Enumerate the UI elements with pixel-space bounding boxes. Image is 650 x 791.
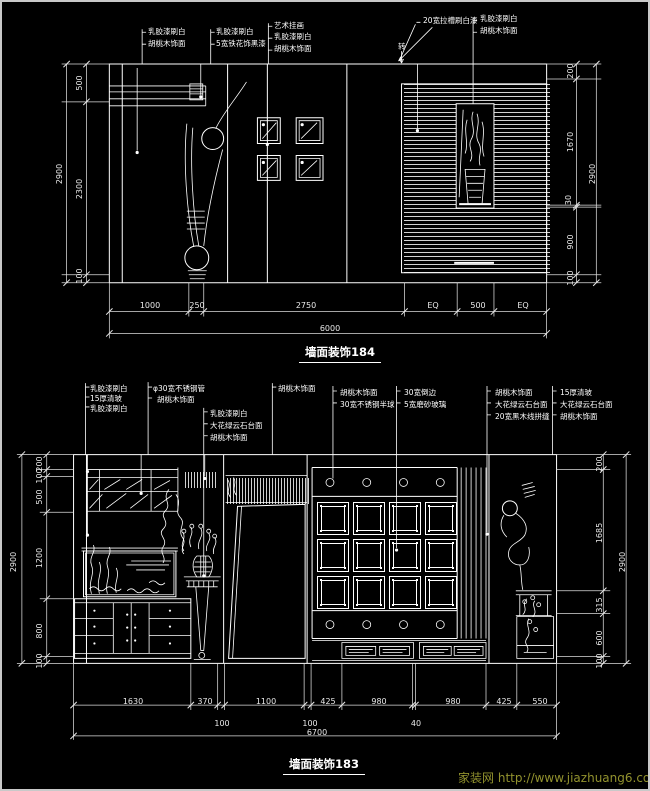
- material-label: 艺术挂画: [274, 22, 304, 30]
- dim-label: 100: [302, 720, 317, 728]
- material-label: 乳胶漆刷白: [148, 28, 186, 36]
- material-label: 胡桃木饰面: [480, 27, 518, 35]
- dim-label: 2300: [76, 179, 84, 199]
- material-label: 乳胶漆刷白: [480, 15, 518, 23]
- dim-label: 2900: [589, 164, 597, 184]
- dim-label: 40: [411, 720, 421, 728]
- material-label: 大花绿云石台面: [560, 401, 613, 409]
- dim-label: 1200: [36, 548, 44, 568]
- dim-label: 1630: [123, 698, 143, 706]
- material-label: 胡桃木饰面: [278, 385, 316, 393]
- watermark-site: 家装网: [458, 771, 494, 785]
- watermark: 家装网 http://www.jiazhuang6.com: [458, 769, 650, 786]
- material-label: 5宽铁花饰黑漆: [216, 40, 266, 48]
- dim-label: 6000: [320, 325, 340, 333]
- dim-label: 200: [567, 63, 575, 78]
- material-label: 胡桃木饰面: [210, 434, 248, 442]
- dim-label: 2900: [10, 552, 18, 572]
- material-label: 胡桃木饰面: [560, 413, 598, 421]
- material-label: 胡桃木饰面: [157, 396, 195, 404]
- dim-label: 1670: [567, 132, 575, 152]
- dim-label: 800: [36, 623, 44, 638]
- material-label: 乳胶漆刷白: [274, 33, 312, 41]
- dim-label: 1100: [256, 698, 276, 706]
- dim-label: 1000: [140, 302, 160, 310]
- dim-label: EQ: [517, 302, 528, 310]
- dim-label: 425: [496, 698, 511, 706]
- dim-label: 100: [596, 653, 604, 668]
- dim-label: 370: [197, 698, 212, 706]
- dim-label: EQ: [427, 302, 438, 310]
- material-label: 胡桃木饰面: [148, 40, 186, 48]
- dim-label: 100: [76, 268, 84, 283]
- dim-label: 100: [36, 468, 44, 483]
- dim-label: 315: [596, 597, 604, 612]
- dim-label: 500: [470, 302, 485, 310]
- material-label: 20宽拉槽刷白漆: [423, 17, 478, 25]
- material-label: 胡桃木饰面: [340, 389, 378, 397]
- material-label: 乳胶漆刷白: [90, 385, 128, 393]
- drawing-title: 墙面装饰184: [299, 344, 381, 363]
- material-label: 大花绿云石台面: [210, 422, 263, 430]
- dim-label: 1685: [596, 523, 604, 543]
- material-label: 胡桃木饰面: [495, 389, 533, 397]
- dim-label: 2900: [56, 164, 64, 184]
- dim-label: 100: [567, 270, 575, 285]
- dim-label: 30: [565, 195, 573, 205]
- dim-label: 425: [320, 698, 335, 706]
- dim-label: 550: [532, 698, 547, 706]
- watermark-url: http://www.jiazhuang6.com: [498, 771, 650, 785]
- material-label: 15厚清玻: [90, 395, 122, 403]
- dim-label: 2750: [296, 302, 316, 310]
- dim-label: 100: [214, 720, 229, 728]
- rotate-note: 转: [398, 43, 406, 51]
- material-label: 30宽不锈钢半球: [340, 401, 395, 409]
- cad-canvas: 乳胶漆刷白 胡桃木饰面 乳胶漆刷白 5宽铁花饰黑漆 艺术挂画 乳胶漆刷白 胡桃木…: [0, 0, 650, 791]
- material-label: 15厚清玻: [560, 389, 592, 397]
- dim-label: 500: [36, 489, 44, 504]
- material-label: 20宽黑木线拼缝: [495, 413, 550, 421]
- dim-label: 980: [371, 698, 386, 706]
- material-label: 乳胶漆刷白: [216, 28, 254, 36]
- dim-label: 600: [596, 630, 604, 645]
- material-label: 胡桃木饰面: [274, 45, 312, 53]
- dim-label: 200: [596, 456, 604, 471]
- dim-label: 100: [36, 653, 44, 668]
- dim-label: 980: [445, 698, 460, 706]
- material-label: φ30宽不锈钢管: [153, 385, 205, 393]
- material-label: 大花绿云石台面: [495, 401, 548, 409]
- drawing-title: 墙面装饰183: [283, 756, 365, 775]
- dim-label: 500: [76, 75, 84, 90]
- dim-label: 900: [567, 234, 575, 249]
- dim-label: 2900: [619, 552, 627, 572]
- material-label: 乳胶漆刷白: [90, 405, 128, 413]
- material-label: 30宽倒边: [404, 389, 436, 397]
- dim-label: 6700: [307, 729, 327, 737]
- material-label: 乳胶漆刷白: [210, 410, 248, 418]
- material-label: 5宽磨砂玻璃: [404, 401, 446, 409]
- dim-label: 250: [189, 302, 204, 310]
